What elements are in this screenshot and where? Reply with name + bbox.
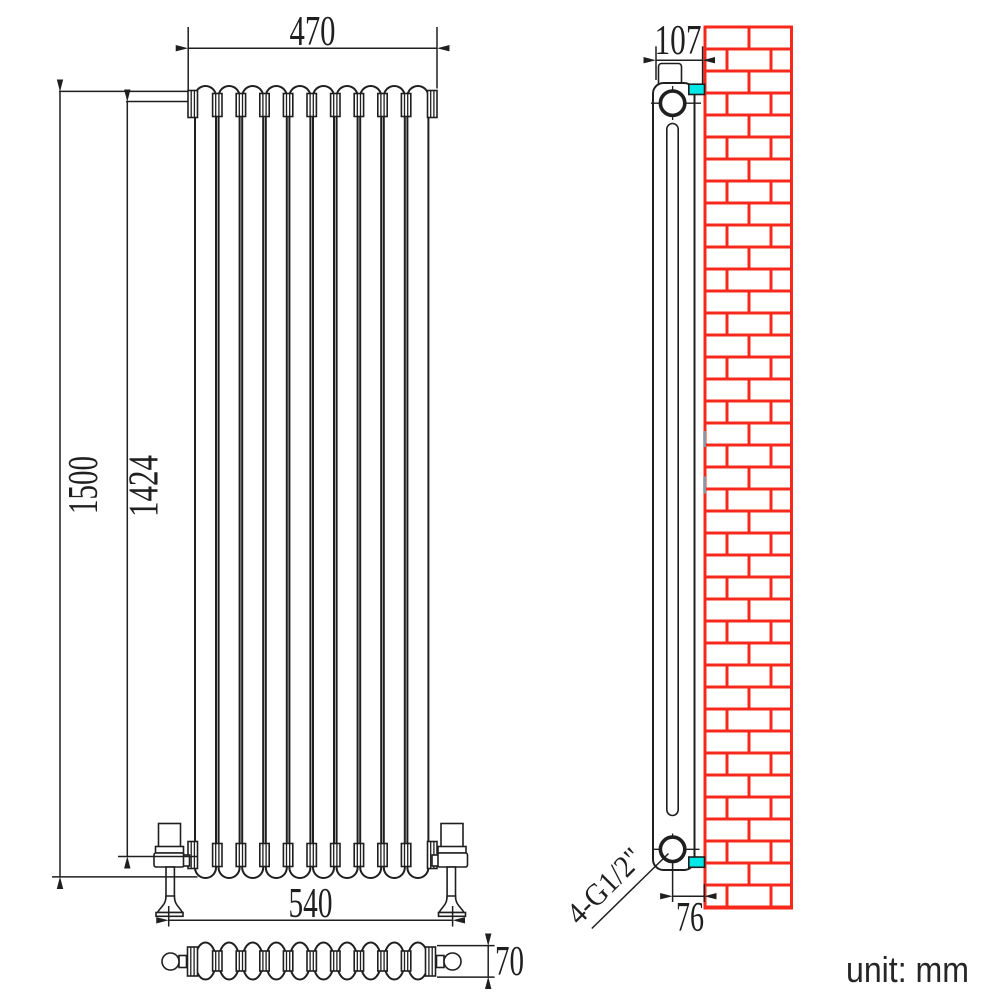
column-joint [213,844,222,867]
column-joint [354,844,363,867]
side-profile-slot [667,124,678,816]
radiator-column [219,86,240,878]
column-joint [331,844,340,867]
radiator-valve-left [154,824,190,917]
plan-view [162,943,461,980]
radiator-column [313,86,334,878]
plan-section-joint [401,951,410,971]
wall-bracket-bottom [689,857,705,867]
plan-section-joint [213,951,222,971]
dim-label-front-top-width: 470 [290,9,336,55]
radiator-column [242,86,263,878]
radiator-column [266,86,287,878]
radiator-column [407,86,428,878]
radiator-column [360,86,381,878]
plan-section-joint [354,951,363,971]
radiator-column [384,86,405,878]
column-joint [307,844,316,867]
header-end-cap [428,91,438,118]
wall-bracket-top [689,84,705,94]
column-joint [283,94,292,117]
plan-valve-knob [444,953,461,970]
plan-section-joint [260,951,269,971]
wall-fixing-mark-lower [703,477,706,494]
plan-section-joints [213,951,411,971]
plan-valve-knob [162,953,179,970]
dim-label-front-overall-height: 1500 [61,456,107,514]
unit-note: unit: mm [846,949,969,990]
wall-brick-pattern [705,27,792,908]
column-joint [378,94,387,117]
plan-section-joint [378,951,387,971]
plan-valve-nut [437,956,445,968]
wall-fixing-mark-upper [703,431,706,447]
column-joint [401,844,410,867]
plan-section-joint [283,951,292,971]
plan-end-fitting-left [162,947,198,976]
plan-section-joint [331,951,340,971]
radiator-column [289,86,310,878]
column-joint [378,844,387,867]
radiator-column [337,86,358,878]
plan-end-fitting-right [426,947,462,976]
radiator-technical-drawing: 470 1500 1424 540 70 107 76 4-G1/2" [0,0,1001,1001]
dim-label-front-valve-centres: 540 [289,881,333,927]
dim-label-side-overall-depth: 107 [655,18,702,64]
header-end-cap [188,91,198,118]
plan-section-joint [307,951,316,971]
dim-label-wall-to-pipe-centre: 76 [676,895,704,941]
radiator-valve-right [432,824,468,917]
radiator-columns [195,86,428,878]
plan-section-joint [236,951,245,971]
column-joint [213,94,222,117]
plan-valve-nut [179,956,187,968]
column-joint [331,94,340,117]
brick-wall [703,27,791,908]
column-joint [236,844,245,867]
dim-label-front-tapping-height: 1424 [122,455,168,517]
column-joint [236,94,245,117]
column-joint [260,844,269,867]
dim-label-plan-depth: 70 [495,939,524,985]
column-joint [354,94,363,117]
column-joint [401,94,410,117]
column-joint [307,94,316,117]
radiator-column [195,86,216,878]
column-joint [283,844,292,867]
top-tapping-circle [660,91,684,115]
front-view [154,86,468,916]
technical-drawing-page: 470 1500 1424 540 70 107 76 4-G1/2" [0,0,1001,1001]
side-view [651,64,701,871]
column-joint [260,94,269,117]
